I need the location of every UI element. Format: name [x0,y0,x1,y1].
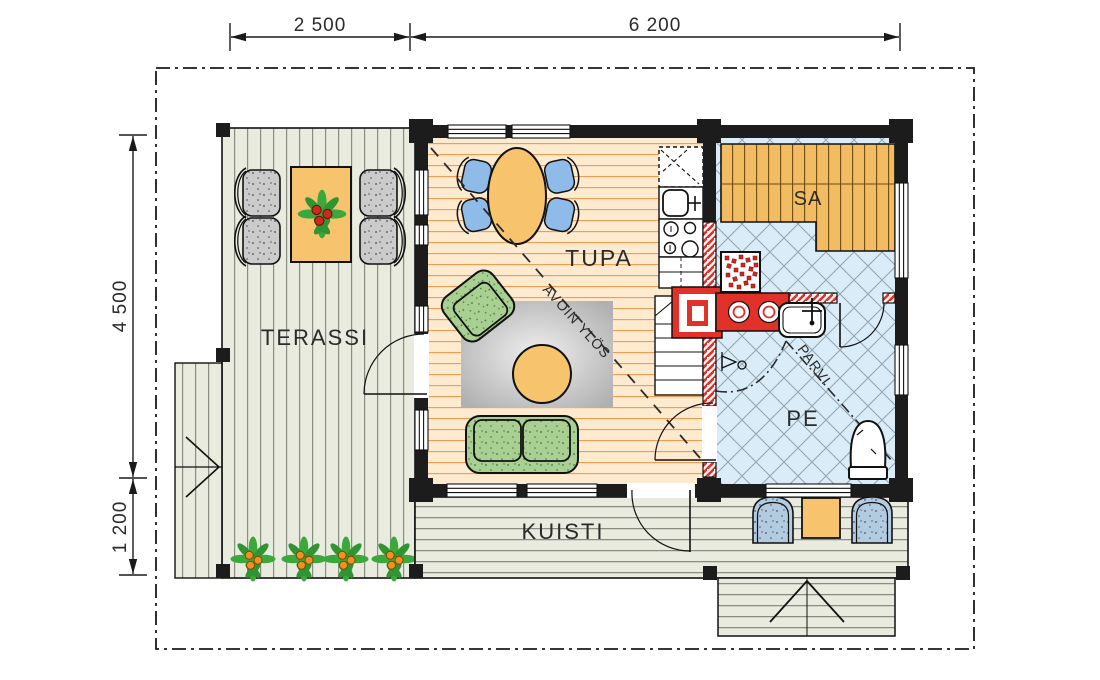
dining-table [488,148,546,244]
log-post [216,123,230,137]
terrace-stairs [175,363,222,578]
porch-chair [753,497,793,543]
washbasin [779,298,825,337]
room-label-kuisti: KUISTI [522,519,605,544]
kitchen-stove [659,219,703,257]
room-label-sauna: SA [794,188,823,210]
porch-table [802,498,840,538]
log-post [216,348,230,362]
floor-plan-canvas: 2 500 6 200 4 500 1 200 [0,0,1100,680]
dimension-label-1200: 1 200 [110,501,131,554]
kitchen-cabinet-dashed [659,147,703,187]
entrance-stairs [718,578,895,636]
porch-chair [852,497,892,543]
room-label-tupa: TUPA [565,245,633,271]
floor-plan-drawing: 2 500 6 200 4 500 1 200 [0,0,1100,680]
fireplace [672,287,722,338]
kitchen-sink [659,187,703,219]
dimension-label-4500: 4 500 [110,280,131,333]
dimension-label-6200: 6 200 [629,15,682,36]
sauna-stove [721,252,760,292]
log-post [703,566,717,580]
kitchen-units [659,147,703,288]
log-post [216,564,230,578]
room-label-washroom: PE [786,406,819,431]
log-post [409,564,423,578]
log-post [896,566,910,580]
toilet [849,421,887,479]
room-label-terassi: TERASSI [261,325,369,350]
coffee-table [513,345,571,403]
dimension-label-2500: 2 500 [294,15,347,36]
sofa [466,416,578,473]
kitchen-counter [659,257,703,288]
